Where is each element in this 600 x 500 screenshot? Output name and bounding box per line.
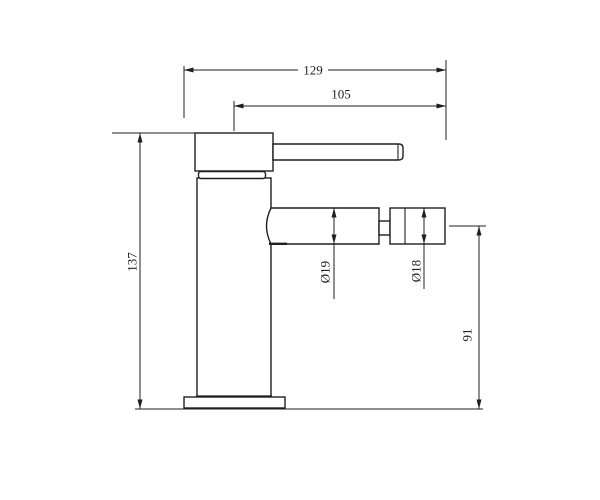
faucet-cap: [195, 133, 273, 171]
dim-label-dia18: Ø18: [409, 260, 424, 282]
dimension-spout-axis-height: 91: [449, 226, 486, 409]
technical-drawing-page: 129 105 137 Ø19 Ø18: [0, 0, 600, 500]
faucet-base-flange: [184, 397, 285, 408]
dim-label-105: 105: [331, 86, 351, 101]
faucet-dimension-drawing: 129 105 137 Ø19 Ø18: [0, 0, 600, 500]
dim-label-137: 137: [125, 252, 140, 272]
faucet-aerator: [390, 208, 445, 244]
cap-neck-ring: [199, 172, 266, 179]
dim-label-91: 91: [460, 329, 475, 342]
faucet-outline: [135, 133, 483, 409]
faucet-body: [197, 178, 271, 397]
spout-aerator-connector: [379, 221, 390, 235]
faucet-spout: [267, 208, 380, 244]
dim-label-129: 129: [303, 63, 323, 78]
dim-label-dia19: Ø19: [318, 261, 333, 283]
dimension-overall-width: 129: [184, 60, 446, 140]
dimension-spout-reach: 105: [234, 86, 446, 131]
dimension-overall-height: 137: [112, 133, 195, 409]
faucet-handle-lever: [273, 144, 403, 160]
